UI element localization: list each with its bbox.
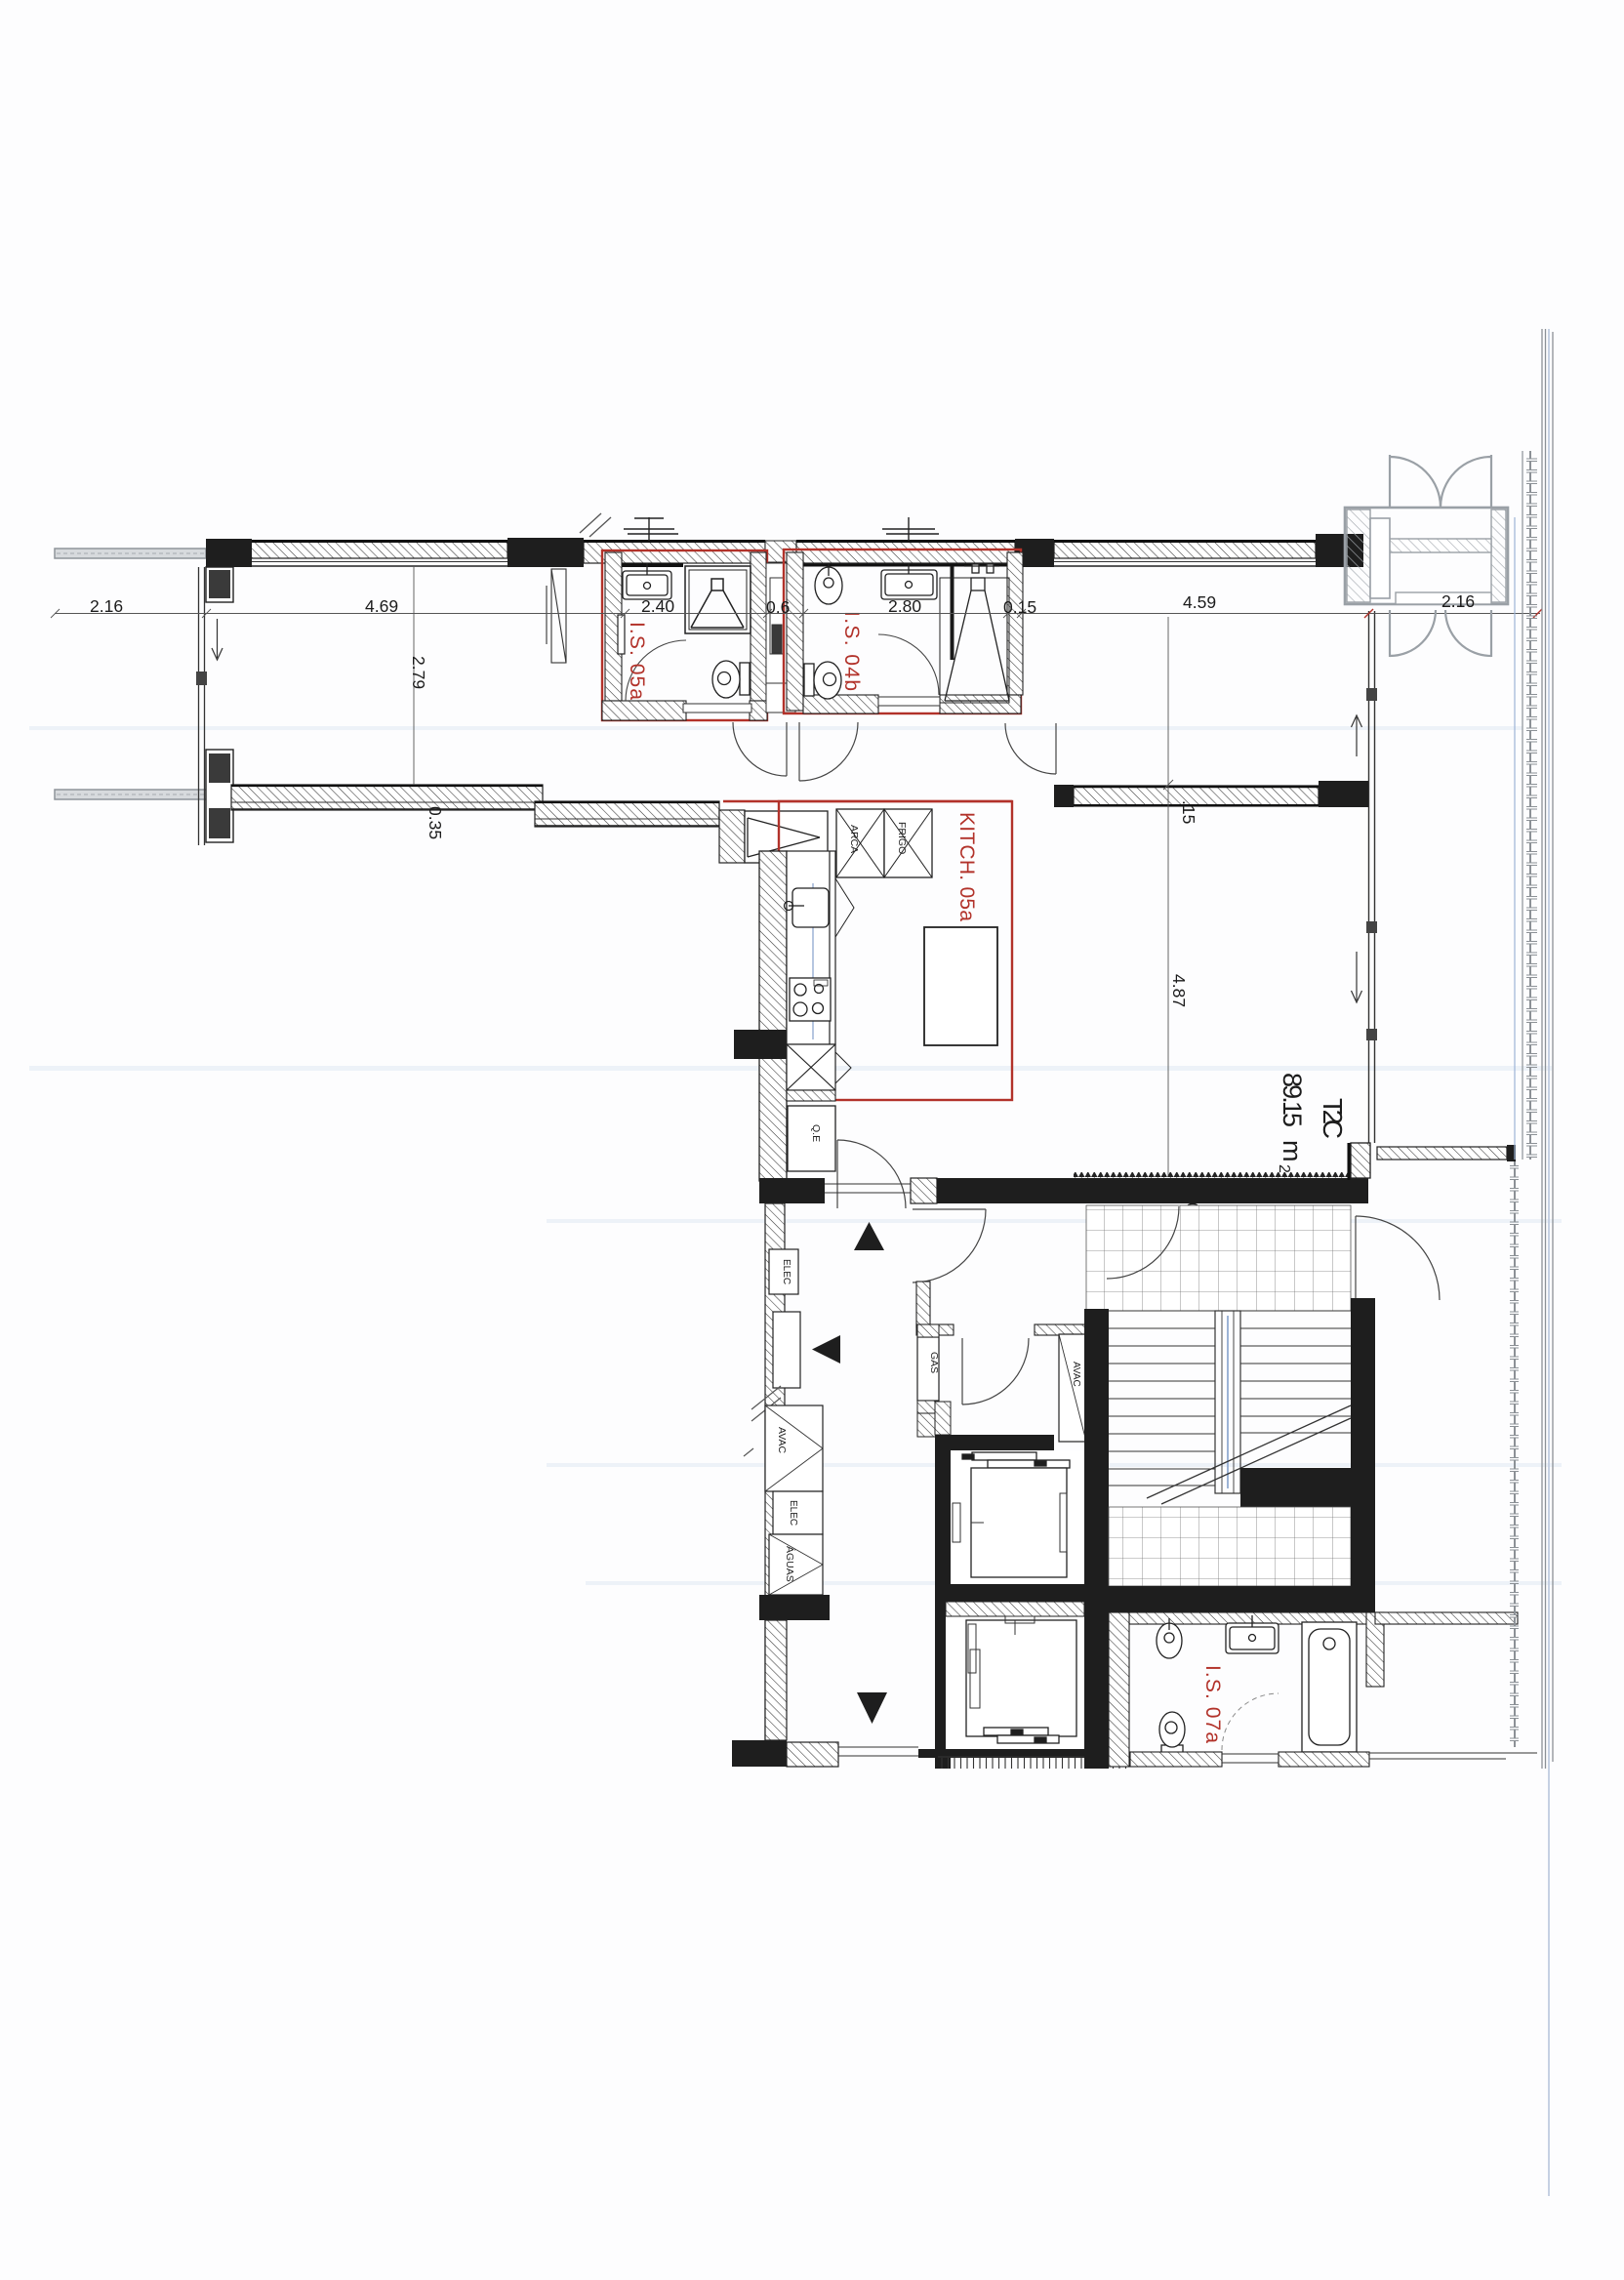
svg-text:I.S. 04b: I.S. 04b: [840, 611, 863, 691]
svg-text:FRIGO: FRIGO: [896, 822, 908, 854]
svg-text:ÁGUAS: ÁGUAS: [784, 1546, 796, 1582]
svg-text:ARCA: ARCA: [848, 825, 860, 853]
svg-text:2: 2: [1276, 1164, 1292, 1173]
svg-text:Q.E: Q.E: [810, 1124, 822, 1142]
svg-text:T2C: T2C: [1318, 1098, 1348, 1139]
svg-text:I.S. 05a: I.S. 05a: [626, 622, 648, 700]
svg-text:I.S. 07a: I.S. 07a: [1201, 1665, 1224, 1743]
svg-text:2.40: 2.40: [641, 596, 674, 616]
svg-text:2.80: 2.80: [888, 596, 921, 616]
svg-text:2.79: 2.79: [409, 656, 428, 689]
svg-text:4.69: 4.69: [365, 596, 398, 616]
svg-text:ELEC: ELEC: [788, 1500, 798, 1526]
svg-text:AVAC: AVAC: [1071, 1362, 1081, 1387]
svg-text:4.59: 4.59: [1183, 592, 1216, 612]
svg-text:2.16: 2.16: [1441, 591, 1475, 611]
svg-text:0.6: 0.6: [766, 597, 790, 617]
svg-text:2.16: 2.16: [90, 596, 123, 616]
svg-text:89.15: 89.15: [1278, 1073, 1307, 1127]
svg-text:0.15: 0.15: [1003, 597, 1036, 617]
svg-text:KITCH. 05a: KITCH. 05a: [955, 812, 978, 921]
svg-text:0.35: 0.35: [426, 806, 445, 839]
svg-text:AVAC: AVAC: [776, 1427, 788, 1453]
svg-text:GAS: GAS: [928, 1352, 940, 1373]
svg-text:ELEC: ELEC: [781, 1259, 792, 1284]
svg-text:4.87: 4.87: [1169, 974, 1189, 1007]
svg-text:.15: .15: [1179, 800, 1198, 824]
svg-text:m: m: [1278, 1140, 1307, 1162]
